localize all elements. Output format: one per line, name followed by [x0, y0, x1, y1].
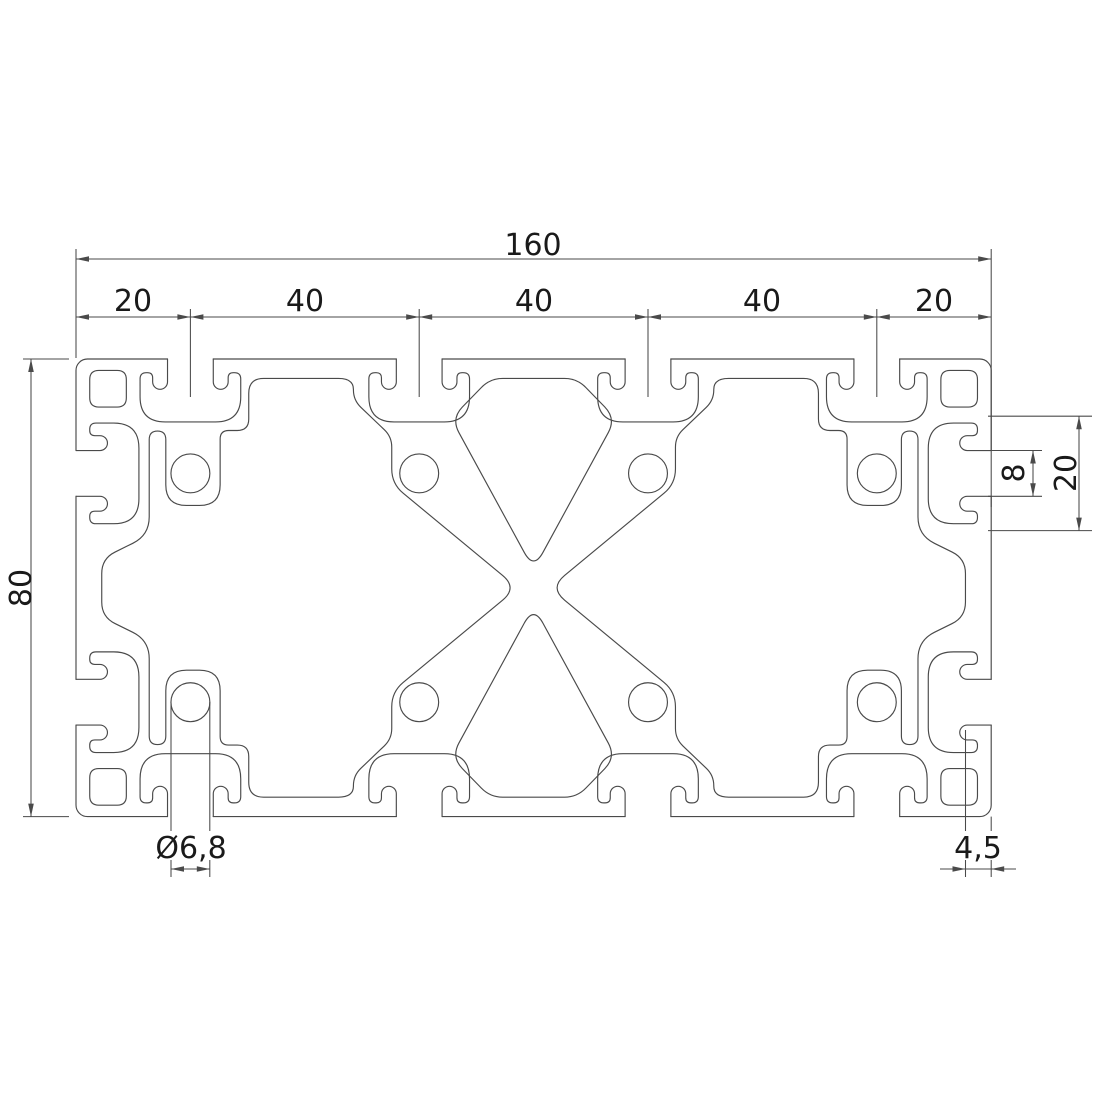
corner-screw-channel — [941, 370, 978, 407]
generated-geometry — [23, 249, 1092, 877]
dimension-arrowhead — [190, 314, 203, 320]
dimension-arrowhead — [864, 314, 877, 320]
dim-height-label: 80 — [4, 569, 39, 607]
right-features — [557, 370, 991, 805]
bottom-features — [140, 615, 927, 817]
technical-drawing: 160 20 40 40 40 20 80 20 8 Ø6,8 4,5 — [0, 0, 1100, 1100]
t-slot-chamber — [826, 754, 927, 817]
dim-total-width-label: 160 — [504, 228, 561, 263]
corner-screw-channel — [90, 769, 127, 806]
profile-outer-contour — [76, 359, 991, 817]
top-features — [140, 615, 927, 817]
dimension-arrowhead — [406, 314, 419, 320]
t-slot-chamber — [598, 754, 699, 817]
dimension-arrowhead — [28, 804, 34, 817]
top-features — [140, 359, 927, 561]
corner-screw-channel — [941, 769, 978, 806]
core-cavity-shield — [456, 378, 612, 561]
dimension-arrowhead — [978, 256, 991, 262]
dim-hole-diameter-label: Ø6,8 — [155, 831, 226, 866]
dimension-arrowhead — [28, 359, 34, 372]
dimension-annotations — [23, 249, 1092, 877]
dim-wall-thickness-label: 4,5 — [954, 831, 1002, 866]
dim-segment-5-label: 20 — [915, 284, 953, 319]
corner-screw-channel — [90, 370, 127, 407]
t-slot-chamber — [369, 754, 470, 817]
dimension-arrowhead — [978, 314, 991, 320]
dimension-arrowhead — [953, 866, 966, 872]
t-slot-chamber-side — [928, 652, 991, 753]
t-slot-chamber-side — [76, 652, 139, 753]
dimension-arrowhead — [635, 314, 648, 320]
dim-segment-4-label: 40 — [743, 284, 781, 319]
dim-slot-pitch-label: 20 — [1049, 454, 1084, 492]
core-cavity-lobed — [102, 378, 510, 797]
dimension-arrowhead — [991, 866, 1004, 872]
left-features — [76, 370, 510, 805]
left-features — [557, 370, 991, 805]
dimension-arrowhead — [1030, 483, 1036, 496]
core-bore-hole — [857, 454, 896, 493]
dimension-arrowhead — [877, 314, 890, 320]
dimension-arrowhead — [171, 866, 184, 872]
core-cavity-shield — [456, 615, 612, 798]
dim-slot-opening-label: 8 — [997, 463, 1032, 482]
dim-segment-2-label: 40 — [286, 284, 324, 319]
dimension-arrowhead — [1076, 518, 1082, 531]
t-slot-chamber — [140, 754, 241, 817]
core-bore-hole — [629, 683, 668, 722]
core-bore-hole — [857, 683, 896, 722]
profile-geometry — [76, 359, 991, 817]
dimension-arrowhead — [76, 314, 89, 320]
dimension-arrowhead — [76, 256, 89, 262]
core-cavity-lobed — [557, 378, 965, 797]
core-bore-hole — [400, 454, 439, 493]
dimension-arrowhead — [419, 314, 432, 320]
dimension-arrowhead — [648, 314, 661, 320]
dimension-arrowhead — [1076, 416, 1082, 429]
dim-segment-1-label: 20 — [114, 284, 152, 319]
t-slot-chamber-side — [76, 423, 139, 524]
dim-segment-3-label: 40 — [515, 284, 553, 319]
core-bore-hole — [629, 454, 668, 493]
drawing-stage: 160 20 40 40 40 20 80 20 8 Ø6,8 4,5 — [0, 0, 1100, 1100]
dimension-arrowhead — [1030, 451, 1036, 464]
core-bore-hole — [400, 683, 439, 722]
core-bore-hole — [171, 454, 210, 493]
t-slot-chamber-side — [928, 423, 991, 524]
dimension-arrowhead — [197, 866, 210, 872]
dim-text-masks — [155, 831, 1007, 860]
dimension-arrowhead — [177, 314, 190, 320]
core-bore-hole — [171, 683, 210, 722]
